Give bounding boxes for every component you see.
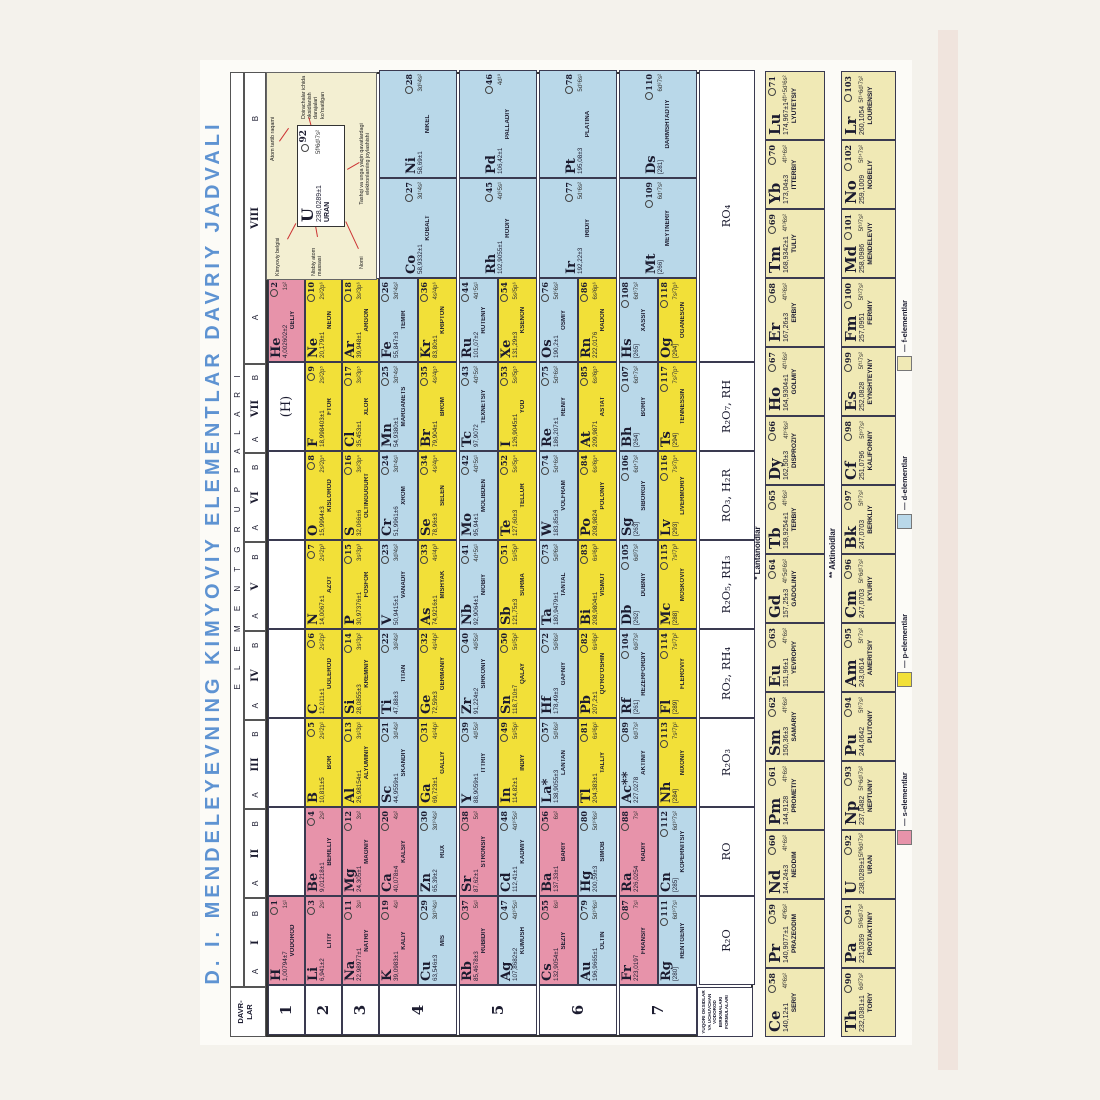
oxidation-circle-icon bbox=[768, 157, 776, 165]
element-electron-config: 5f²6d¹7s² bbox=[859, 904, 866, 928]
element-atomic-mass: 28,0855±3 bbox=[357, 684, 363, 714]
element-cell-Bi: Bi83208,9804±16s²6p³VISMUT bbox=[578, 540, 617, 629]
element-cell-mid-row: 167,26±34f¹²6s² bbox=[783, 283, 790, 342]
period-label-7: 7 bbox=[619, 985, 697, 1035]
element-electron-config: 5f³6d¹7s² bbox=[859, 833, 866, 857]
element-electron-config: 6d¹⁰7s¹ bbox=[673, 900, 679, 919]
element-atomic-number: 27 bbox=[405, 182, 413, 193]
element-name-label: RENIY bbox=[561, 366, 567, 447]
element-name-label: RODIY bbox=[505, 182, 511, 274]
element-name-label: KADMIY bbox=[520, 811, 526, 892]
oxidation-circle-icon bbox=[565, 194, 573, 202]
element-cell-Os: Os76190,2±15d⁶6s²OSMIY bbox=[539, 278, 578, 362]
element-atomic-mass: 6,941±2 bbox=[320, 958, 326, 981]
sample-config: 5f³6d¹7s² bbox=[316, 130, 323, 154]
element-cell-mid-row: [285]6d¹⁰7s² bbox=[673, 811, 679, 892]
element-atomic-mass: 91,224±2 bbox=[474, 688, 480, 714]
element-atomic-mass: 121,75±3 bbox=[513, 599, 519, 625]
element-number-group: 13 bbox=[344, 722, 352, 742]
element-cell-mid-row: 252,08285f¹¹7s² bbox=[859, 352, 866, 411]
oxide-formula-cell: RO₃, H₂R bbox=[699, 451, 755, 540]
element-cell-top-row: Sm62 bbox=[768, 697, 783, 756]
element-atomic-number: 102 bbox=[844, 145, 852, 162]
element-atomic-mass: 88,9059±1 bbox=[474, 773, 480, 803]
element-name-label: MOSKOVIY bbox=[680, 544, 686, 625]
element-symbol: Bk bbox=[844, 526, 859, 549]
oxidation-circle-icon bbox=[660, 829, 668, 837]
oxidation-circle-icon bbox=[500, 734, 508, 742]
element-atomic-mass: [288] bbox=[673, 611, 679, 625]
element-electron-config: 7s²7p³ bbox=[673, 544, 679, 561]
element-electron-config: 6d⁵7s² bbox=[634, 366, 640, 384]
element-atomic-mass: [264] bbox=[634, 433, 640, 447]
element-atomic-number: 53 bbox=[500, 366, 508, 377]
element-electron-config: 5f¹³7s² bbox=[859, 214, 866, 231]
element-atomic-number: 46 bbox=[485, 74, 493, 85]
element-name-label: RADIY bbox=[641, 811, 647, 892]
element-cell-H: (H) bbox=[268, 362, 305, 451]
period-number: 4 bbox=[411, 1005, 426, 1015]
element-atomic-number: 8 bbox=[307, 455, 315, 461]
element-number-group: 32 bbox=[420, 633, 428, 653]
element-cell-top-row: Th90 bbox=[844, 973, 859, 1032]
element-electron-config: 5f⁶7s² bbox=[859, 697, 866, 713]
element-electron-config: 4f⁵6s² bbox=[783, 766, 790, 782]
element-atomic-mass: 192,22±3 bbox=[578, 248, 584, 274]
element-number-group: 91 bbox=[844, 904, 852, 924]
element-cell-Mg: Mg1224,305±13s²MAGNIY bbox=[342, 807, 379, 896]
element-cell-mid-row: 178,49±35d²6s² bbox=[554, 633, 560, 714]
actinoid-cell-Th: Th90232,0381±16d²7s²TORIY bbox=[841, 968, 896, 1037]
element-electron-config: 4s²4p⁶ bbox=[433, 282, 439, 299]
element-cell-mid-row: 208,98246s²6p⁴ bbox=[593, 455, 599, 536]
element-atomic-number: 7 bbox=[307, 544, 315, 550]
element-atomic-mass: 158,9254±1 bbox=[783, 512, 790, 549]
element-name-label: PLUTONIY bbox=[867, 697, 874, 756]
element-number-group: 98 bbox=[844, 421, 852, 441]
element-atomic-number: 68 bbox=[768, 283, 776, 294]
element-cell-mid-row: 244,06425f⁶7s² bbox=[859, 697, 866, 756]
element-cell-mid-row: 112,41±14d¹⁰5s² bbox=[513, 811, 519, 892]
element-atomic-mass: [285] bbox=[673, 878, 679, 892]
element-cell-mid-row: 97,90724d⁵5s² bbox=[474, 366, 480, 447]
oxidation-circle-icon bbox=[844, 364, 852, 372]
element-cell-mid-row: 227,02786d¹7s² bbox=[634, 722, 640, 803]
oxidation-circle-icon bbox=[621, 300, 629, 308]
element-number-group: 49 bbox=[500, 722, 508, 742]
element-electron-config: 6d⁷7s² bbox=[658, 182, 664, 199]
element-name-label: VOLFRAM bbox=[561, 455, 567, 536]
element-atomic-mass: 259,1009 bbox=[859, 175, 866, 204]
element-atomic-number: 81 bbox=[580, 722, 588, 733]
element-electron-config: 3s¹ bbox=[357, 900, 363, 908]
element-cell-mid-row: 87,62±15s² bbox=[474, 811, 480, 892]
element-atomic-number: 42 bbox=[461, 455, 469, 466]
element-name-label: EYNSHTEYNIY bbox=[867, 352, 874, 411]
element-electron-config: 4s²4p² bbox=[433, 633, 439, 650]
element-atomic-mass: 223,0197 bbox=[634, 955, 640, 981]
element-symbol: Mt bbox=[645, 254, 658, 274]
element-cell-Tl: Tl81204,383±16s²6p¹TALLIY bbox=[578, 718, 617, 807]
poster-title: D. I. MENDELEYEVNING KIMYOVIY ELEMENTLAR… bbox=[202, 60, 228, 1045]
oxidation-circle-icon bbox=[420, 734, 428, 742]
element-name-label: KOBALT bbox=[425, 182, 431, 274]
element-cell-mid-row: 83,80±14s²4p⁶ bbox=[433, 282, 439, 358]
element-cell-top-row: Nd60 bbox=[768, 835, 783, 894]
element-cell-mid-row: [284]7s²7p¹ bbox=[673, 722, 679, 803]
element-cell-mid-row: 101,07±24d⁷5s¹ bbox=[474, 282, 480, 358]
element-atomic-mass: 237,0482 bbox=[859, 796, 866, 825]
element-electron-config: 4f⁷5d¹6s² bbox=[783, 559, 790, 583]
element-electron-config: 3d¹4s² bbox=[394, 722, 400, 739]
legend-label-name: Nomi bbox=[359, 229, 365, 269]
element-cell-top-row: Ce58 bbox=[768, 973, 783, 1032]
element-electron-config: 5f⁷6d¹7s² bbox=[859, 559, 866, 583]
element-cell-top-row: Md101 bbox=[844, 214, 859, 273]
element-cell-top-row: Eu63 bbox=[768, 628, 783, 687]
element-atomic-mass: 227,0278 bbox=[634, 777, 640, 803]
actinoid-cell-Es: Es99252,08285f¹¹7s²EYNSHTEYNIY bbox=[841, 347, 896, 416]
element-cell-Cl: Cl1735,453±13s²3p⁵XLOR bbox=[342, 362, 379, 451]
oxidation-circle-icon bbox=[307, 373, 315, 381]
element-name-label: BERKLIY bbox=[867, 490, 874, 549]
oxidation-circle-icon bbox=[844, 94, 852, 102]
oxidation-circle-icon bbox=[768, 502, 776, 510]
element-atomic-number: 78 bbox=[565, 74, 573, 85]
element-atomic-mass: 51,9961±6 bbox=[394, 506, 400, 536]
element-name-label: ITTRIY bbox=[481, 722, 487, 803]
oxidation-circle-icon bbox=[344, 734, 352, 742]
element-atomic-mass: 95,94±1 bbox=[474, 513, 480, 536]
element-electron-config: 3s²3p⁵ bbox=[357, 366, 363, 384]
oxidation-circle-icon bbox=[381, 378, 389, 386]
oxidation-circle-icon bbox=[844, 163, 852, 171]
element-name-label: FLEROVIY bbox=[680, 633, 686, 714]
element-cell-mid-row: 168,9342±14f¹³6s² bbox=[783, 214, 790, 273]
element-cell-mid-row: 6,941±22s¹ bbox=[320, 900, 326, 981]
element-atomic-number: 15 bbox=[344, 544, 352, 555]
element-atomic-number: 98 bbox=[844, 421, 852, 432]
element-cell-mid-row: 51,9961±63d⁵4s¹ bbox=[394, 455, 400, 536]
actinoid-cell-Np: Np93237,04825f⁴6d¹7s²NEPTUNIY bbox=[841, 761, 896, 830]
element-atomic-number: 59 bbox=[768, 904, 776, 915]
element-name-label: ARGON bbox=[364, 282, 370, 358]
element-electron-config: 5f¹²7s² bbox=[859, 283, 866, 300]
element-atomic-number: 44 bbox=[461, 282, 469, 293]
oxide-formula: RO₃, H₂R bbox=[721, 469, 733, 522]
element-electron-config: 3d⁸4s² bbox=[418, 74, 424, 92]
element-cell-Sb: Sb51121,75±35s²5p³SURMA bbox=[498, 540, 537, 629]
element-atomic-mass: 58,9332±1 bbox=[418, 244, 424, 274]
element-atomic-mass: 186,207±1 bbox=[554, 417, 560, 447]
oxidation-circle-icon bbox=[420, 645, 428, 653]
oxidation-circle-icon bbox=[381, 912, 389, 920]
element-electron-config: 6s²6p⁶ bbox=[593, 282, 599, 299]
element-cell-mid-row: 32,066±63s²3p⁴ bbox=[357, 455, 363, 536]
element-name-label: SIRKONIY bbox=[481, 633, 487, 714]
element-atomic-mass: 79,904±1 bbox=[433, 421, 439, 447]
element-number-group: 101 bbox=[844, 214, 852, 240]
element-atomic-number: 9 bbox=[307, 366, 315, 372]
element-atomic-number: 70 bbox=[768, 145, 776, 156]
element-number-group: 70 bbox=[768, 145, 776, 165]
element-number-group: 80 bbox=[580, 811, 588, 831]
element-number-group: 2 bbox=[270, 282, 278, 297]
element-cell-mid-row: 39,948±13s²3p⁶ bbox=[357, 282, 363, 358]
oxidation-circle-icon bbox=[344, 378, 352, 386]
element-cell-mid-row: 257,09515f¹²7s² bbox=[859, 283, 866, 342]
element-atomic-mass: 247,0703 bbox=[859, 520, 866, 549]
oxidation-circle-icon bbox=[461, 823, 469, 831]
oxide-formula: R₂O bbox=[721, 929, 733, 952]
category-legend-label: — p-elementlar bbox=[900, 614, 909, 668]
element-atomic-number: 1 bbox=[270, 900, 278, 906]
element-atomic-number: 99 bbox=[844, 352, 852, 363]
element-number-group: 72 bbox=[541, 633, 549, 653]
element-atomic-number: 87 bbox=[621, 900, 629, 911]
element-atomic-number: 33 bbox=[420, 544, 428, 555]
oxidation-circle-icon bbox=[301, 144, 309, 152]
element-electron-config: 5s² bbox=[474, 811, 480, 819]
element-atomic-number: 19 bbox=[381, 900, 389, 911]
oxidation-circle-icon bbox=[621, 912, 629, 920]
element-number-group: 114 bbox=[660, 633, 668, 659]
element-number-group: 94 bbox=[844, 697, 852, 717]
element-atomic-number: 13 bbox=[344, 722, 352, 733]
element-number-group: 28 bbox=[405, 74, 413, 94]
lanthanoid-cell-Ce: Ce58140,12±14f²6s²SERIY bbox=[765, 968, 825, 1037]
element-number-group: 23 bbox=[381, 544, 389, 564]
group-roman-numeral: VI bbox=[250, 491, 261, 503]
element-electron-config: 6d¹7s² bbox=[634, 722, 640, 739]
oxidation-circle-icon bbox=[660, 918, 668, 926]
element-cell-top-row: Ir77 bbox=[565, 182, 578, 274]
element-atomic-number: 35 bbox=[420, 366, 428, 377]
element-electron-config: 6d⁶7s² bbox=[634, 282, 640, 299]
element-cell-Pt: Pt78195,08±35d⁹6s¹PLATINA bbox=[539, 70, 617, 178]
element-electron-config: 4f¹¹6s² bbox=[783, 352, 790, 369]
element-number-group: 21 bbox=[381, 722, 389, 742]
oxidation-circle-icon bbox=[307, 294, 315, 302]
element-atomic-mass: [261] bbox=[634, 700, 640, 714]
oxide-row-header: YUQORI OKSIDLAR VA UCHUVCHAN VODOROD BIR… bbox=[697, 987, 753, 1037]
oxide-formula-cell: R₂O₇, RH bbox=[699, 362, 755, 451]
element-electron-config: 3d¹⁰4s² bbox=[433, 811, 439, 830]
lanthanoid-cell-Dy: Dy66162,50±34f¹⁰6s²DISPROZIY bbox=[765, 416, 825, 485]
element-number-group: 44 bbox=[461, 282, 469, 302]
element-name-label: FRANSIY bbox=[641, 900, 647, 981]
oxidation-circle-icon bbox=[844, 916, 852, 924]
element-cell-mid-row: 47,88±33d²4s² bbox=[394, 633, 400, 714]
element-electron-config: 1s² bbox=[283, 282, 289, 290]
oxidation-circle-icon bbox=[844, 571, 852, 579]
period-number: 3 bbox=[353, 1005, 368, 1015]
element-cell-Au: Au79196,9665±15d¹⁰6s¹OLTIN bbox=[578, 896, 617, 985]
legend-pointer-line bbox=[287, 223, 296, 239]
element-cell-mid-row: 190,2±15d⁶6s² bbox=[554, 282, 560, 358]
element-atomic-mass: 207,2±1 bbox=[593, 691, 599, 714]
element-atomic-mass: 138,9055±3 bbox=[554, 770, 560, 803]
empty-cell bbox=[268, 629, 305, 718]
element-atomic-mass: 151,96±1 bbox=[783, 658, 790, 687]
oxidation-circle-icon bbox=[844, 433, 852, 441]
element-symbol: Gd bbox=[768, 595, 783, 618]
element-electron-config: 6s² bbox=[554, 811, 560, 819]
element-cell-mid-row: 91,224±24d²5s² bbox=[474, 633, 480, 714]
element-number-group: 46 bbox=[485, 74, 493, 94]
element-cell-mid-row: 106,42±14d¹⁰ bbox=[498, 74, 504, 174]
element-name-label: PRAZEODIM bbox=[791, 904, 798, 963]
element-electron-config: 3d¹⁰4s¹ bbox=[433, 900, 439, 919]
element-cell-top-row: Tm69 bbox=[768, 214, 783, 273]
element-number-group: 88 bbox=[621, 811, 629, 831]
element-atomic-number: 74 bbox=[541, 455, 549, 466]
element-name-label: RENTGENIY bbox=[680, 900, 686, 981]
element-name-label: OLTIN bbox=[600, 900, 606, 981]
element-name-label: URAN bbox=[867, 835, 874, 894]
element-cell-Nb: Nb4192,9064±14d⁴5s¹NIOBIY bbox=[459, 540, 498, 629]
element-number-group: 100 bbox=[844, 283, 852, 309]
element-name-label: VODOROD bbox=[290, 900, 296, 981]
element-atomic-number: 109 bbox=[645, 182, 653, 199]
element-cell-mid-row: 126,9045±15s²5p⁵ bbox=[513, 366, 519, 447]
element-cell-top-row: Pm61 bbox=[768, 766, 783, 825]
element-name-label: VISMUT bbox=[600, 544, 606, 625]
hydrogen-duplicate-symbol: (H) bbox=[280, 396, 293, 417]
element-atomic-mass: 32,066±6 bbox=[357, 510, 363, 536]
element-atomic-mass: 14,0067±1 bbox=[320, 595, 326, 625]
element-symbol: Co bbox=[405, 255, 418, 274]
element-atomic-number: 71 bbox=[768, 76, 776, 87]
element-electron-config: 3s²3p⁴ bbox=[357, 455, 363, 473]
category-legend-item: — s-elementlar bbox=[897, 772, 911, 845]
element-cell-Cd: Cd48112,41±14d¹⁰5s²KADMIY bbox=[498, 807, 537, 896]
element-cell-mid-row: 144,91284f⁵6s² bbox=[783, 766, 790, 825]
element-cell-Hg: Hg80200,59±35d¹⁰6s²SIMOB bbox=[578, 807, 617, 896]
oxidation-circle-icon bbox=[381, 294, 389, 302]
element-electron-config: 1s¹ bbox=[283, 900, 289, 908]
actinoid-cell-Bk: Bk97247,07035f⁹7s²BERKLIY bbox=[841, 485, 896, 554]
element-number-group: 76 bbox=[541, 282, 549, 302]
element-name-label: LIVERMORIY bbox=[680, 455, 686, 536]
element-atomic-mass: 58,69±1 bbox=[418, 151, 424, 174]
element-cell-mid-row: 1,00794±71s¹ bbox=[283, 900, 289, 981]
element-cell-mid-row: 102,9055±14d⁸5s¹ bbox=[498, 182, 504, 274]
element-atomic-number: 85 bbox=[580, 366, 588, 377]
element-atomic-number: 6 bbox=[307, 633, 315, 639]
element-atomic-number: 54 bbox=[500, 282, 508, 293]
oxidation-circle-icon bbox=[768, 640, 776, 648]
element-electron-config: 6d⁸7s² bbox=[658, 74, 664, 92]
element-cell-mid-row: 10,811±52s²2p¹ bbox=[320, 722, 326, 803]
element-cell-Ac: Ac**89227,02786d¹7s²AKTINIY bbox=[619, 718, 658, 807]
lanthanoid-cell-Pm: Pm61144,91284f⁵6s²PROMETIY bbox=[765, 761, 825, 830]
element-electron-config: 5d¹⁰6s² bbox=[593, 811, 599, 830]
oxidation-circle-icon bbox=[645, 200, 653, 208]
element-number-group: 33 bbox=[420, 544, 428, 564]
element-electron-config: 6s¹ bbox=[554, 900, 560, 908]
oxidation-circle-icon bbox=[344, 294, 352, 302]
element-name-label: PROTAKTINIY bbox=[867, 904, 874, 963]
element-electron-config: 5d³6s² bbox=[554, 544, 560, 561]
element-number-group: 42 bbox=[461, 455, 469, 475]
oxide-formula-cell: R₂O₅, RH₃ bbox=[699, 540, 755, 629]
element-cell-mid-row: 258,09865f¹³7s² bbox=[859, 214, 866, 273]
element-atomic-number: 77 bbox=[565, 182, 573, 193]
element-number-group: 35 bbox=[420, 366, 428, 386]
element-atomic-mass: 22,98977±1 bbox=[357, 948, 363, 981]
element-cell-Bh: Bh107[264]6d⁵7s²BORIY bbox=[619, 362, 658, 451]
subgroup-a-label: A bbox=[251, 315, 260, 320]
sample-name: URAN bbox=[324, 130, 331, 222]
subgroup-a-label: A bbox=[251, 792, 260, 797]
element-number-group: 56 bbox=[541, 811, 549, 831]
period-number: 2 bbox=[316, 1005, 331, 1015]
category-color-swatch bbox=[897, 356, 912, 371]
element-cell-Si: Si1428,0855±33s²3p²KREMNIY bbox=[342, 629, 379, 718]
element-cell-Cs: Cs55132,9054±16s¹SEZIY bbox=[539, 896, 578, 985]
element-cell-Ir: Ir77192,22±35d⁷6s²IRIDIY bbox=[539, 178, 617, 278]
element-atomic-number: 97 bbox=[844, 490, 852, 501]
element-atomic-mass: 50,9415±1 bbox=[394, 595, 400, 625]
oxidation-circle-icon bbox=[844, 232, 852, 240]
element-electron-config: 5d⁴6s² bbox=[554, 455, 560, 473]
oxidation-circle-icon bbox=[660, 740, 668, 748]
element-atomic-mass: 243,0614 bbox=[859, 658, 866, 687]
element-atomic-mass: 168,9342±1 bbox=[783, 236, 790, 273]
element-cell-In: In49114,82±15s²5p¹INDIY bbox=[498, 718, 537, 807]
oxidation-circle-icon bbox=[580, 556, 588, 564]
element-cell-mid-row: 259,10095f¹⁴7s² bbox=[859, 145, 866, 204]
element-atomic-mass: 114,82±1 bbox=[513, 777, 519, 803]
element-number-group: 79 bbox=[580, 900, 588, 920]
element-name-label: KUMUSH bbox=[520, 900, 526, 981]
oxidation-circle-icon bbox=[580, 645, 588, 653]
element-atomic-number: 91 bbox=[844, 904, 852, 915]
element-symbol: Ho bbox=[768, 387, 783, 411]
element-number-group: 9 bbox=[307, 366, 315, 381]
element-name-label: SKANDIY bbox=[401, 722, 407, 803]
element-number-group: 116 bbox=[660, 455, 668, 481]
element-atomic-number: 60 bbox=[768, 835, 776, 846]
element-name-label: LANTAN bbox=[561, 722, 567, 803]
element-name-label: TEXNETSIY bbox=[481, 366, 487, 447]
element-atomic-mass: 85,4678±3 bbox=[474, 951, 480, 981]
element-atomic-number: 106 bbox=[621, 455, 629, 472]
element-name-label: KISLOROD bbox=[327, 455, 333, 536]
element-cell-top-row: Pr59 bbox=[768, 904, 783, 963]
element-electron-config: 4f¹³6s² bbox=[783, 214, 790, 231]
period-number: 5 bbox=[491, 1005, 506, 1015]
oxidation-circle-icon bbox=[541, 294, 549, 302]
element-number-group: 18 bbox=[344, 282, 352, 302]
oxidation-circle-icon bbox=[645, 92, 653, 100]
element-cell-mid-row: 150,36±34f⁶6s² bbox=[783, 697, 790, 756]
oxidation-circle-icon bbox=[580, 467, 588, 475]
element-cell-top-row: Dy66 bbox=[768, 421, 783, 480]
element-atomic-number: 18 bbox=[344, 282, 352, 293]
element-electron-config: 2s²2p³ bbox=[320, 544, 326, 561]
element-symbol: Cf bbox=[844, 462, 859, 480]
element-cell-mid-row: 63,546±33d¹⁰4s¹ bbox=[433, 900, 439, 981]
element-electron-config: 2s¹ bbox=[320, 900, 326, 908]
element-name-label: BOR bbox=[327, 722, 333, 803]
group-header-IV: AIVB bbox=[244, 631, 266, 720]
oxidation-circle-icon bbox=[500, 467, 508, 475]
element-atomic-mass: 12,011±1 bbox=[320, 688, 326, 714]
element-electron-config: 2s²2p⁴ bbox=[320, 455, 326, 473]
element-cell-mid-row: [281]6d⁸7s² bbox=[658, 74, 664, 174]
